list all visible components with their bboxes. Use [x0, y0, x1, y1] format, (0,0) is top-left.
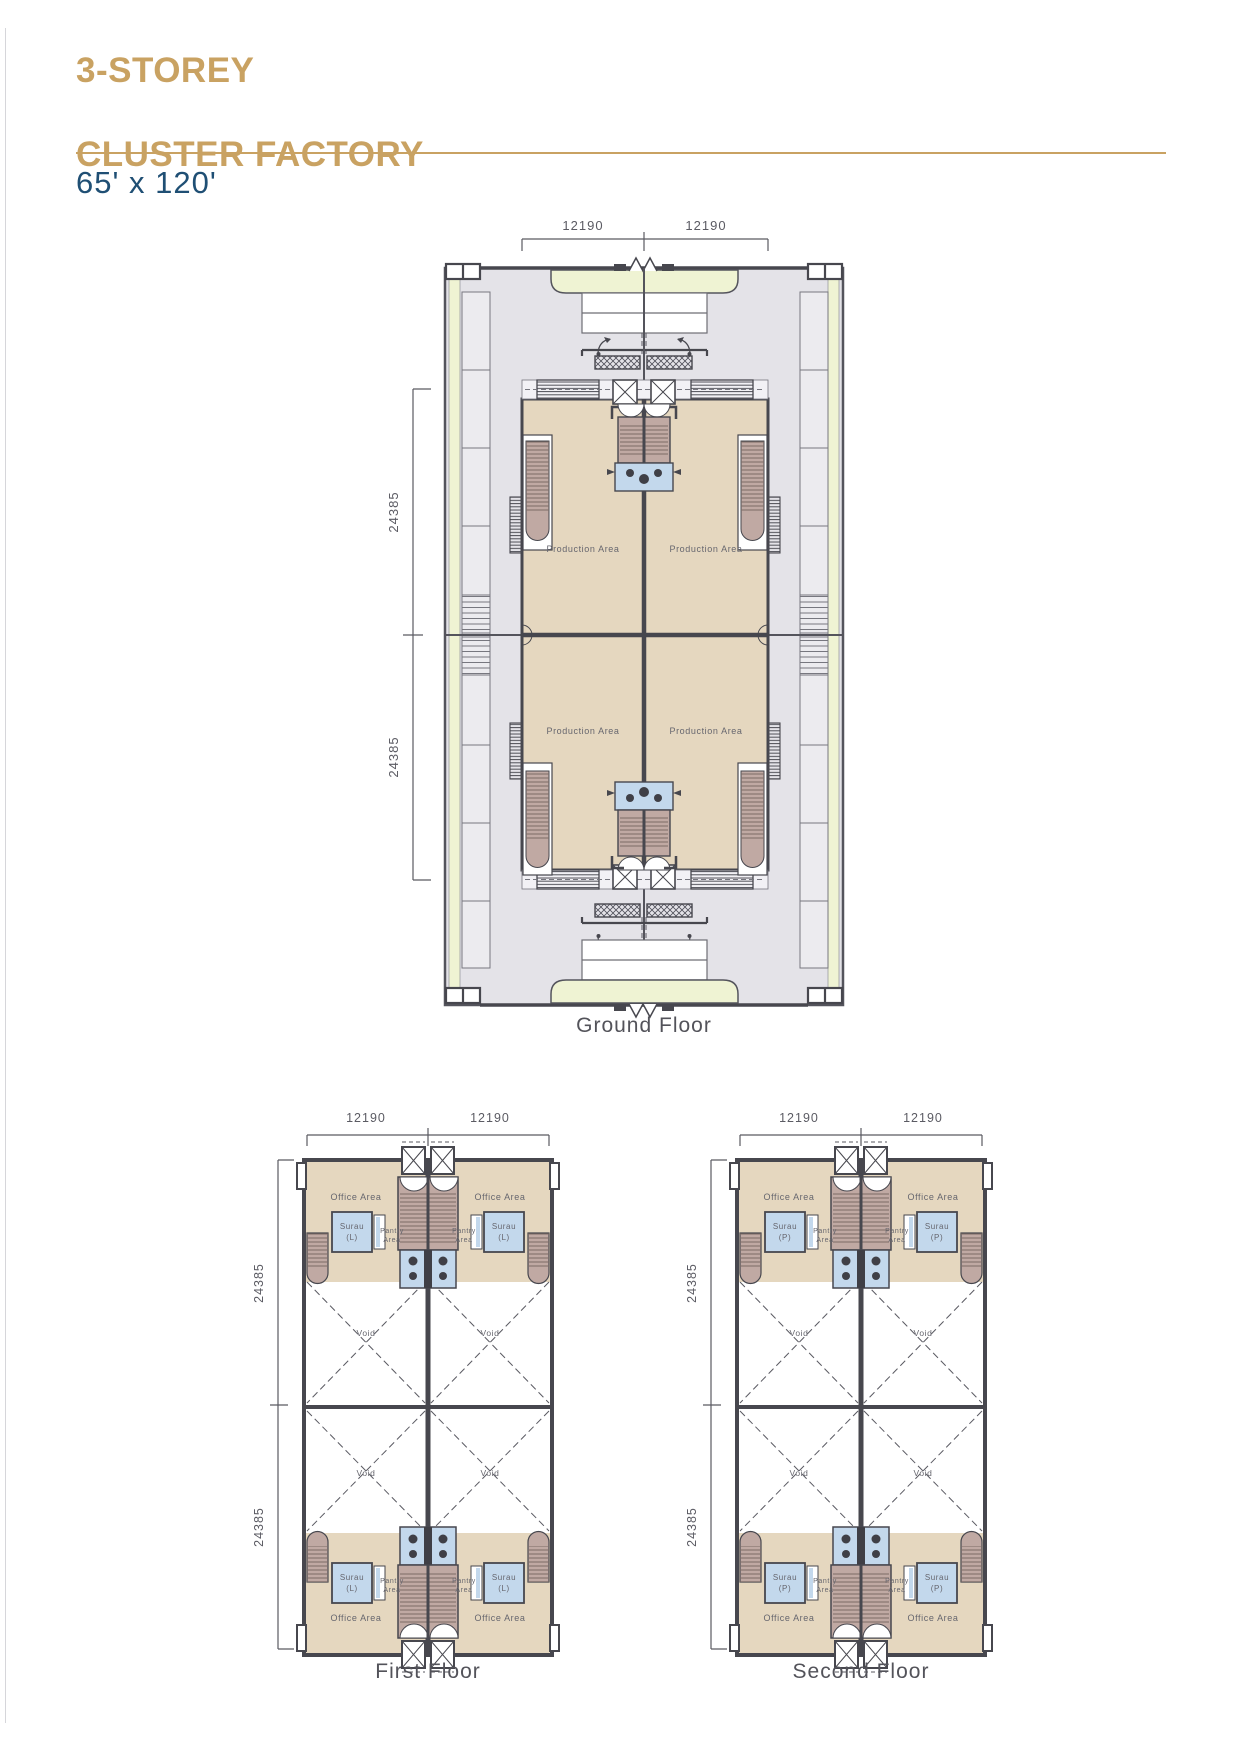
dim-label: 24385 — [685, 1263, 699, 1303]
surau-label: (L) — [498, 1233, 510, 1242]
void-label: Void — [914, 1468, 933, 1478]
pantry-area-label: Area — [455, 1237, 472, 1244]
pantry-area-label: Area — [383, 1237, 400, 1244]
production-area-label: Production Area — [669, 726, 742, 736]
surau-label: Surau — [340, 1573, 364, 1582]
surau-label: (P) — [931, 1584, 943, 1593]
surau-label: Surau — [773, 1573, 797, 1582]
first-floor-caption: First Floor — [278, 1660, 578, 1684]
dim-label: 12190 — [470, 1111, 510, 1125]
pantry-area-label: Area — [455, 1587, 472, 1594]
void-label: Void — [481, 1468, 500, 1478]
loading-bay-bottom — [582, 940, 707, 980]
surau-label: Surau — [492, 1573, 516, 1582]
dim-label: 12190 — [903, 1111, 943, 1125]
office-area-label: Office Area — [908, 1192, 959, 1202]
dim-label: 12190 — [346, 1111, 386, 1125]
office-area-label: Office Area — [331, 1613, 382, 1623]
office-area-label: Office Area — [331, 1192, 382, 1202]
unit-size-label: 65' x 120' — [76, 165, 217, 201]
pantry-area-label: Area — [383, 1587, 400, 1594]
surau-label: (L) — [346, 1233, 358, 1242]
void-label: Void — [481, 1328, 500, 1338]
pantry-area-label: Pantry — [885, 1228, 909, 1235]
pantry-area-label: Pantry — [452, 1228, 476, 1235]
production-area-label: Production Area — [546, 544, 619, 554]
second-floor-caption: Second Floor — [711, 1660, 1011, 1684]
surau-label: Surau — [773, 1222, 797, 1231]
void-label: Void — [790, 1328, 809, 1338]
surau-label: Surau — [925, 1573, 949, 1582]
pantry-area-label: Area — [888, 1237, 905, 1244]
pantry-area-label: Pantry — [885, 1578, 909, 1585]
surau-label: (P) — [779, 1233, 791, 1242]
driveway-strip-left — [449, 272, 460, 1001]
production-area-label: Production Area — [669, 544, 742, 554]
parking-bays-left — [462, 292, 490, 968]
parking-bays-right — [800, 292, 828, 968]
second-floor-plan: 12190 12190 24385 24385 Office Area Offi… — [677, 1105, 1007, 1680]
pantry-area-label: Area — [816, 1587, 833, 1594]
pantry-area-label: Pantry — [813, 1578, 837, 1585]
dim-label: 24385 — [685, 1507, 699, 1547]
void-label: Void — [790, 1468, 809, 1478]
ground-floor-caption: Ground Floor — [494, 1014, 794, 1038]
void-label: Void — [357, 1468, 376, 1478]
title-line1: 3-STOREY — [76, 51, 254, 90]
entrance-canopy-bottom — [551, 980, 738, 1003]
brochure-page: 3-STOREY CLUSTER FACTORY 65' x 120' — [0, 0, 1242, 1754]
pantry-area-label: Pantry — [452, 1578, 476, 1585]
pantry-area-label: Pantry — [813, 1228, 837, 1235]
driveway-strip-right — [828, 272, 839, 1001]
dim-label: 24385 — [386, 736, 401, 777]
dim-label: 12190 — [685, 218, 726, 233]
office-area-label: Office Area — [908, 1613, 959, 1623]
office-area-label: Office Area — [475, 1192, 526, 1202]
surau-label: (L) — [346, 1584, 358, 1593]
surau-label: Surau — [340, 1222, 364, 1231]
dim-label: 24385 — [252, 1263, 266, 1303]
dim-label: 24385 — [252, 1507, 266, 1547]
void-label: Void — [914, 1328, 933, 1338]
page-title: 3-STOREY CLUSTER FACTORY — [76, 50, 424, 176]
surau-label: (L) — [498, 1584, 510, 1593]
production-area-label: Production Area — [546, 726, 619, 736]
central-core-top — [607, 404, 681, 491]
void-label: Void — [357, 1328, 376, 1338]
office-area-label: Office Area — [475, 1613, 526, 1623]
office-area-label: Office Area — [764, 1613, 815, 1623]
surau-label: (P) — [931, 1233, 943, 1242]
surau-label: Surau — [925, 1222, 949, 1231]
dim-label: 12190 — [562, 218, 603, 233]
pantry-area-label: Pantry — [380, 1578, 404, 1585]
office-area-label: Office Area — [764, 1192, 815, 1202]
dim-label: 24385 — [386, 491, 401, 532]
surau-label: Surau — [492, 1222, 516, 1231]
title-divider — [76, 152, 1166, 154]
first-floor-plan: 12190 12190 24385 24385 Office Area Offi… — [244, 1105, 574, 1680]
pantry-area-label: Pantry — [380, 1228, 404, 1235]
dim-label: 12190 — [779, 1111, 819, 1125]
page-edge-line — [5, 28, 6, 1723]
surau-label: (P) — [779, 1584, 791, 1593]
pantry-area-label: Area — [816, 1237, 833, 1244]
ground-floor-plan: Production Area Production Area Producti… — [385, 205, 875, 1020]
pantry-area-label: Area — [888, 1587, 905, 1594]
